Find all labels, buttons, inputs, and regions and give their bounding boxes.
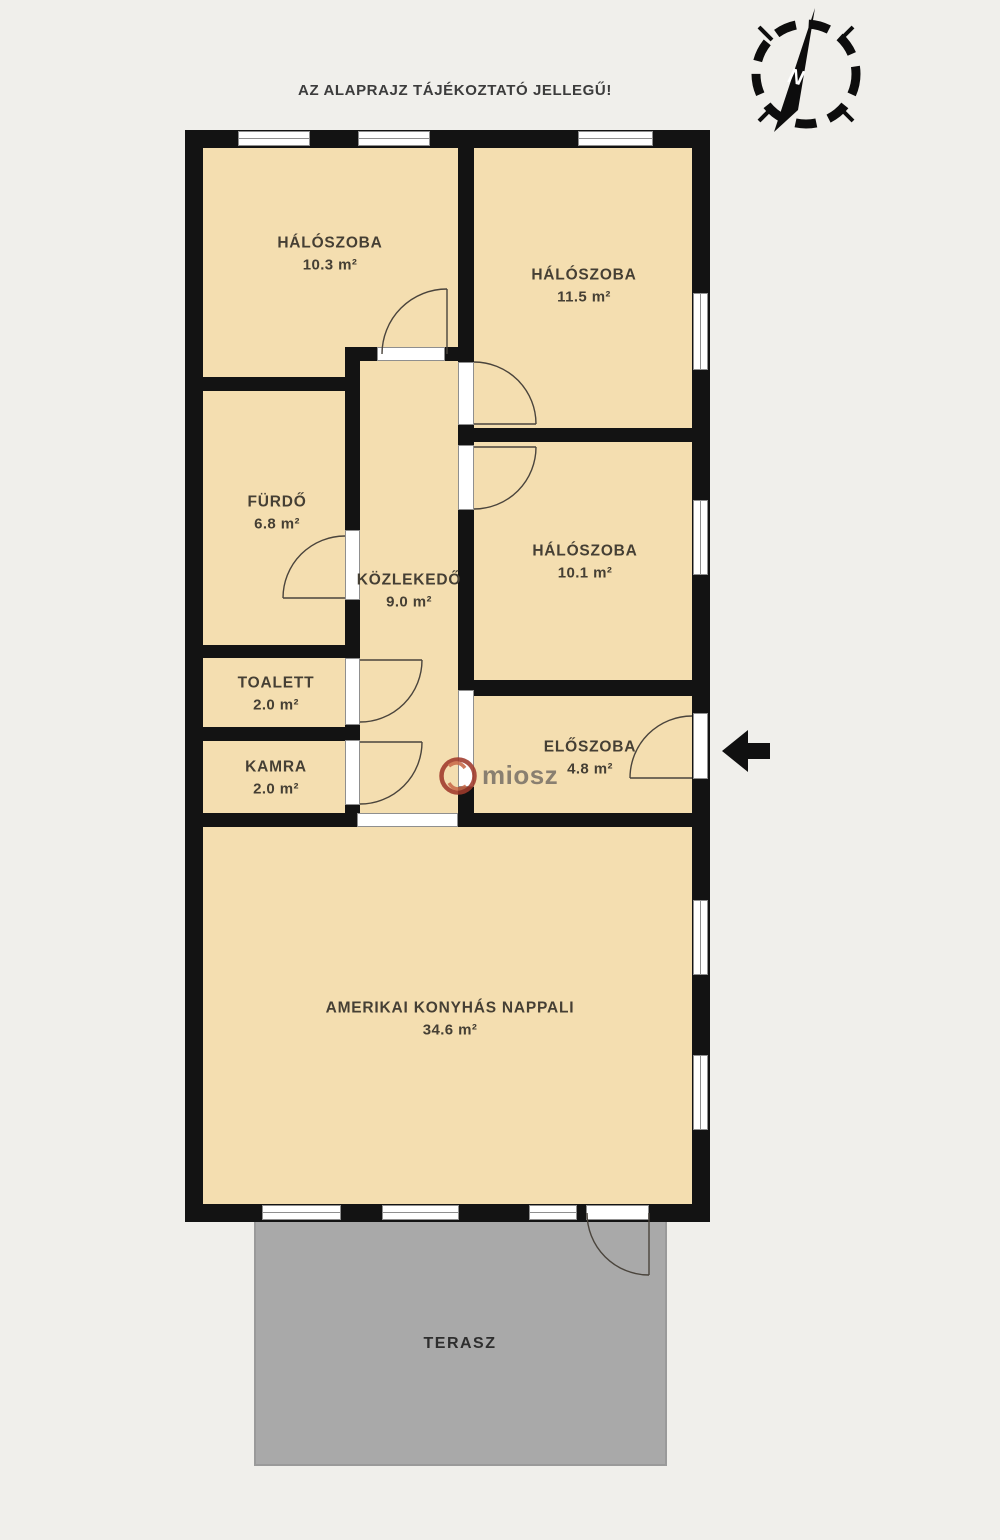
- wall-livingroom-top-left: [185, 813, 357, 827]
- room-name: ELŐSZOBA: [544, 738, 637, 755]
- room-name: KAMRA: [245, 758, 307, 775]
- room-area: 34.6 m²: [326, 1019, 575, 1040]
- window: [693, 293, 708, 370]
- door-opening-toilet: [345, 658, 360, 725]
- room-label-livingroom: AMERIKAI KONYHÁS NAPPALI 34.6 m²: [326, 997, 575, 1040]
- compass-needle: [774, 8, 815, 132]
- wall-segment: [458, 787, 474, 813]
- room-label-bathroom: FÜRDŐ 6.8 m²: [247, 491, 306, 534]
- door-opening-bedroom3: [458, 445, 474, 510]
- wall-segment: [458, 425, 474, 447]
- room-area: 2.0 m²: [245, 778, 307, 799]
- disclaimer-title: AZ ALAPRAJZ TÁJÉKOZTATÓ JELLEGŰ!: [298, 82, 612, 99]
- window: [382, 1205, 459, 1220]
- room-name: HÁLÓSZOBA: [532, 542, 637, 559]
- wall-corridor-left: [345, 725, 360, 740]
- passage-corridor-livingroom: [357, 813, 458, 827]
- window: [693, 1055, 708, 1130]
- wall-bedroom-bath: [203, 377, 345, 391]
- room-name: HÁLÓSZOBA: [531, 266, 636, 283]
- entrance-arrow-icon: [722, 730, 770, 772]
- room-area: 10.3 m²: [277, 254, 382, 275]
- door-opening-bedroom2: [458, 362, 474, 425]
- wall-corridor-top-right: [445, 347, 474, 361]
- room-name: HÁLÓSZOBA: [277, 234, 382, 251]
- room-area: 11.5 m²: [531, 286, 636, 307]
- room-label-corridor: KÖZLEKEDŐ 9.0 m²: [357, 569, 462, 612]
- wall-bedroom-divider: [458, 130, 474, 362]
- wall-toilet-pantry: [203, 727, 345, 741]
- room-name: AMERIKAI KONYHÁS NAPPALI: [326, 999, 575, 1016]
- room-area: 6.8 m²: [247, 513, 306, 534]
- compass-north-label: N: [786, 64, 807, 90]
- window: [693, 500, 708, 575]
- room-name: KÖZLEKEDŐ: [357, 571, 462, 588]
- door-opening-terrace: [586, 1205, 649, 1220]
- room-label-bedroom1: HÁLÓSZOBA 10.3 m²: [277, 232, 382, 275]
- room-label-hall: ELŐSZOBA 4.8 m²: [544, 736, 637, 779]
- room-area: 2.0 m²: [238, 694, 315, 715]
- window: [578, 131, 653, 146]
- room-label-pantry: KAMRA 2.0 m²: [245, 756, 307, 799]
- door-opening-pantry: [345, 740, 360, 805]
- wall-bath-toilet: [203, 645, 345, 658]
- room-name: FÜRDŐ: [247, 493, 306, 510]
- room-label-bedroom3: HÁLÓSZOBA 10.1 m²: [532, 540, 637, 583]
- room-name: TOALETT: [238, 674, 315, 691]
- passage-hall-corridor: [458, 690, 474, 787]
- wall-livingroom-top-right: [458, 813, 710, 827]
- room-label-bedroom2: HÁLÓSZOBA 11.5 m²: [531, 264, 636, 307]
- room-label-toilet: TOALETT 2.0 m²: [238, 672, 315, 715]
- door-opening-entrance: [693, 713, 708, 779]
- room-area: 9.0 m²: [357, 591, 462, 612]
- north-compass-icon: N: [740, 0, 885, 150]
- door-opening-bedroom1: [377, 347, 445, 361]
- window: [529, 1205, 577, 1220]
- window: [262, 1205, 341, 1220]
- wall-bedrooms-right-divider: [474, 428, 710, 442]
- wall-bedroom-hall-divider: [474, 680, 710, 696]
- window: [358, 131, 430, 146]
- window: [693, 900, 708, 975]
- wall-corridor-left: [345, 347, 360, 530]
- window: [238, 131, 310, 146]
- room-label-terrace: TERASZ: [424, 1335, 497, 1353]
- room-area: 4.8 m²: [544, 758, 637, 779]
- floorplan: AZ ALAPRAJZ TÁJÉKOZTATÓ JELLEGŰ!: [0, 0, 1000, 1540]
- wall-outer-left: [185, 130, 203, 1222]
- room-area: 10.1 m²: [532, 562, 637, 583]
